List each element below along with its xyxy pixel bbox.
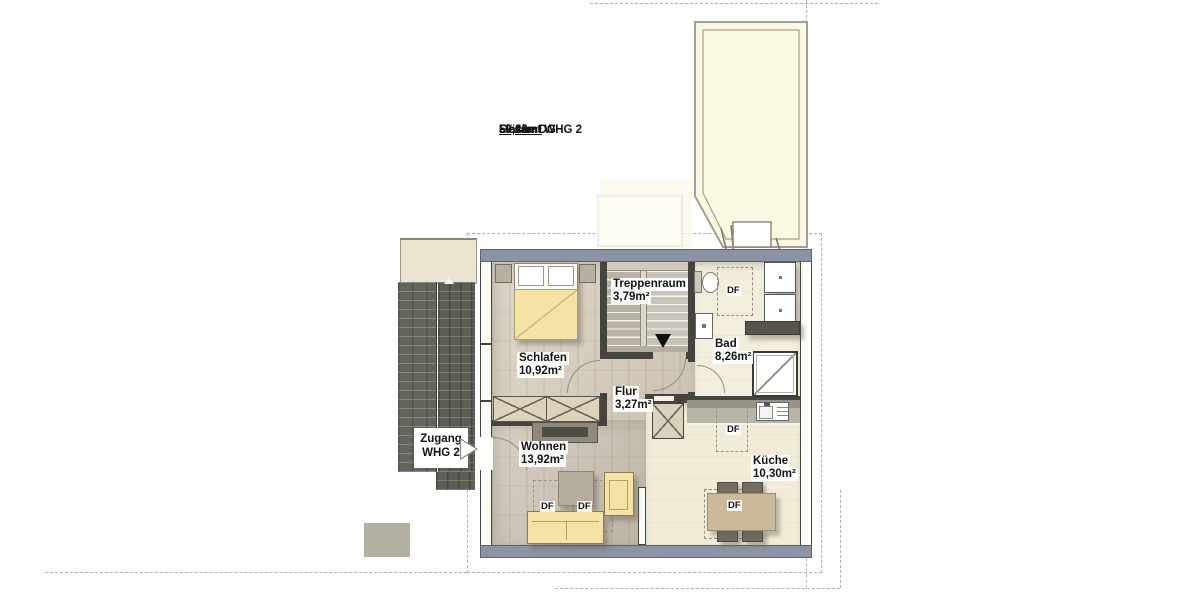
flur-area: 3,27m² [613, 399, 653, 412]
entrance-arrow-icon [461, 440, 476, 458]
sink-bowl [759, 406, 773, 419]
wall-schlafen-treppenraum [600, 262, 607, 358]
wall-north [480, 249, 812, 262]
nightstand-right [579, 264, 596, 283]
window-jamb-top [480, 343, 492, 345]
wohnen-name: Wohnen [519, 441, 568, 454]
bad-area: 8,26m² [713, 351, 753, 364]
wardrobe-panel-right [546, 397, 599, 421]
schlafen-name: Schlafen [517, 352, 569, 365]
bed-pillow-left [518, 266, 544, 286]
site-boundary-dash-right-outer [840, 490, 841, 588]
shower-tray [756, 355, 794, 393]
gesamt-whg-value: 50,46m² [499, 123, 542, 137]
bed-blanket [514, 289, 578, 340]
wall-wohnen-kueche-partition [638, 487, 646, 545]
roof-marker-triangle [444, 276, 454, 284]
wall-south [480, 545, 812, 558]
gable-roof-outline [595, 10, 840, 255]
floor-plan: Fläche DG 50,26m² Gesamt WHG 2 50,46m² [0, 0, 1200, 600]
treppenraum-name: Treppenraum [611, 278, 688, 291]
cabinet-knob [779, 276, 782, 279]
niche-inset [654, 396, 674, 401]
site-boundary-dash-bottom-outer [555, 588, 840, 589]
roof-hatch-stub [436, 472, 475, 490]
wall-treppenraum-flur-b [686, 352, 695, 359]
sink-drain-1 [777, 407, 788, 408]
df-label-kueche-2: DF [727, 500, 742, 511]
dining-table [707, 493, 776, 531]
wall-schlafen-flur-stub [600, 393, 607, 426]
entry-door-opening [479, 437, 493, 470]
site-boundary-dash-bottomright [806, 558, 807, 588]
sofa-cushion-line [566, 522, 567, 540]
stair-direction-arrow [655, 334, 671, 348]
sofa [527, 511, 604, 544]
bad-name: Bad [713, 338, 739, 351]
wall-treppenraum-flur-a [600, 352, 653, 359]
shaft-box [652, 403, 684, 439]
ground-slab [364, 523, 410, 557]
stair-landing [607, 262, 688, 271]
sink-tap [764, 402, 770, 406]
washbasin [695, 313, 713, 339]
wardrobe-panel-left [494, 397, 546, 421]
tv-sideboard-inlay [542, 427, 588, 437]
treppenraum-area: 3,79m² [611, 291, 651, 304]
schlafen-area: 10,92m² [517, 365, 564, 378]
wohnen-area: 13,92m² [519, 454, 566, 467]
kitchen-sink [756, 402, 789, 421]
df-label-wohnen-1: DF [540, 501, 555, 512]
site-boundary-dash-bottomleft [45, 572, 467, 573]
armchair-seat [609, 480, 628, 510]
sink-drain-3 [777, 415, 788, 416]
window-jamb-bottom [480, 400, 492, 402]
cabinet-knob-2 [779, 309, 782, 312]
wall-east [800, 249, 812, 558]
kueche-area: 10,30m² [751, 468, 798, 481]
df-label-wohnen-2: DF [577, 501, 592, 512]
wall-west [480, 249, 492, 558]
armchair [604, 472, 634, 516]
df-label-kueche-1: DF [726, 424, 741, 435]
site-boundary-dash-top [590, 3, 878, 4]
flur-name: Flur [613, 386, 639, 399]
wardrobe [493, 396, 600, 422]
sink-drain-2 [777, 411, 788, 412]
bath-shelf [745, 321, 800, 335]
toilet-tank [694, 271, 702, 293]
shower [752, 351, 798, 397]
bed-pillow-right [548, 266, 574, 286]
kueche-name: Küche [751, 455, 790, 468]
bath-cabinet-top [764, 262, 796, 293]
df-label-bad: DF [726, 285, 741, 296]
washbasin-drain [702, 324, 706, 328]
eaves-strip [400, 238, 477, 284]
nightstand-left [495, 264, 512, 283]
